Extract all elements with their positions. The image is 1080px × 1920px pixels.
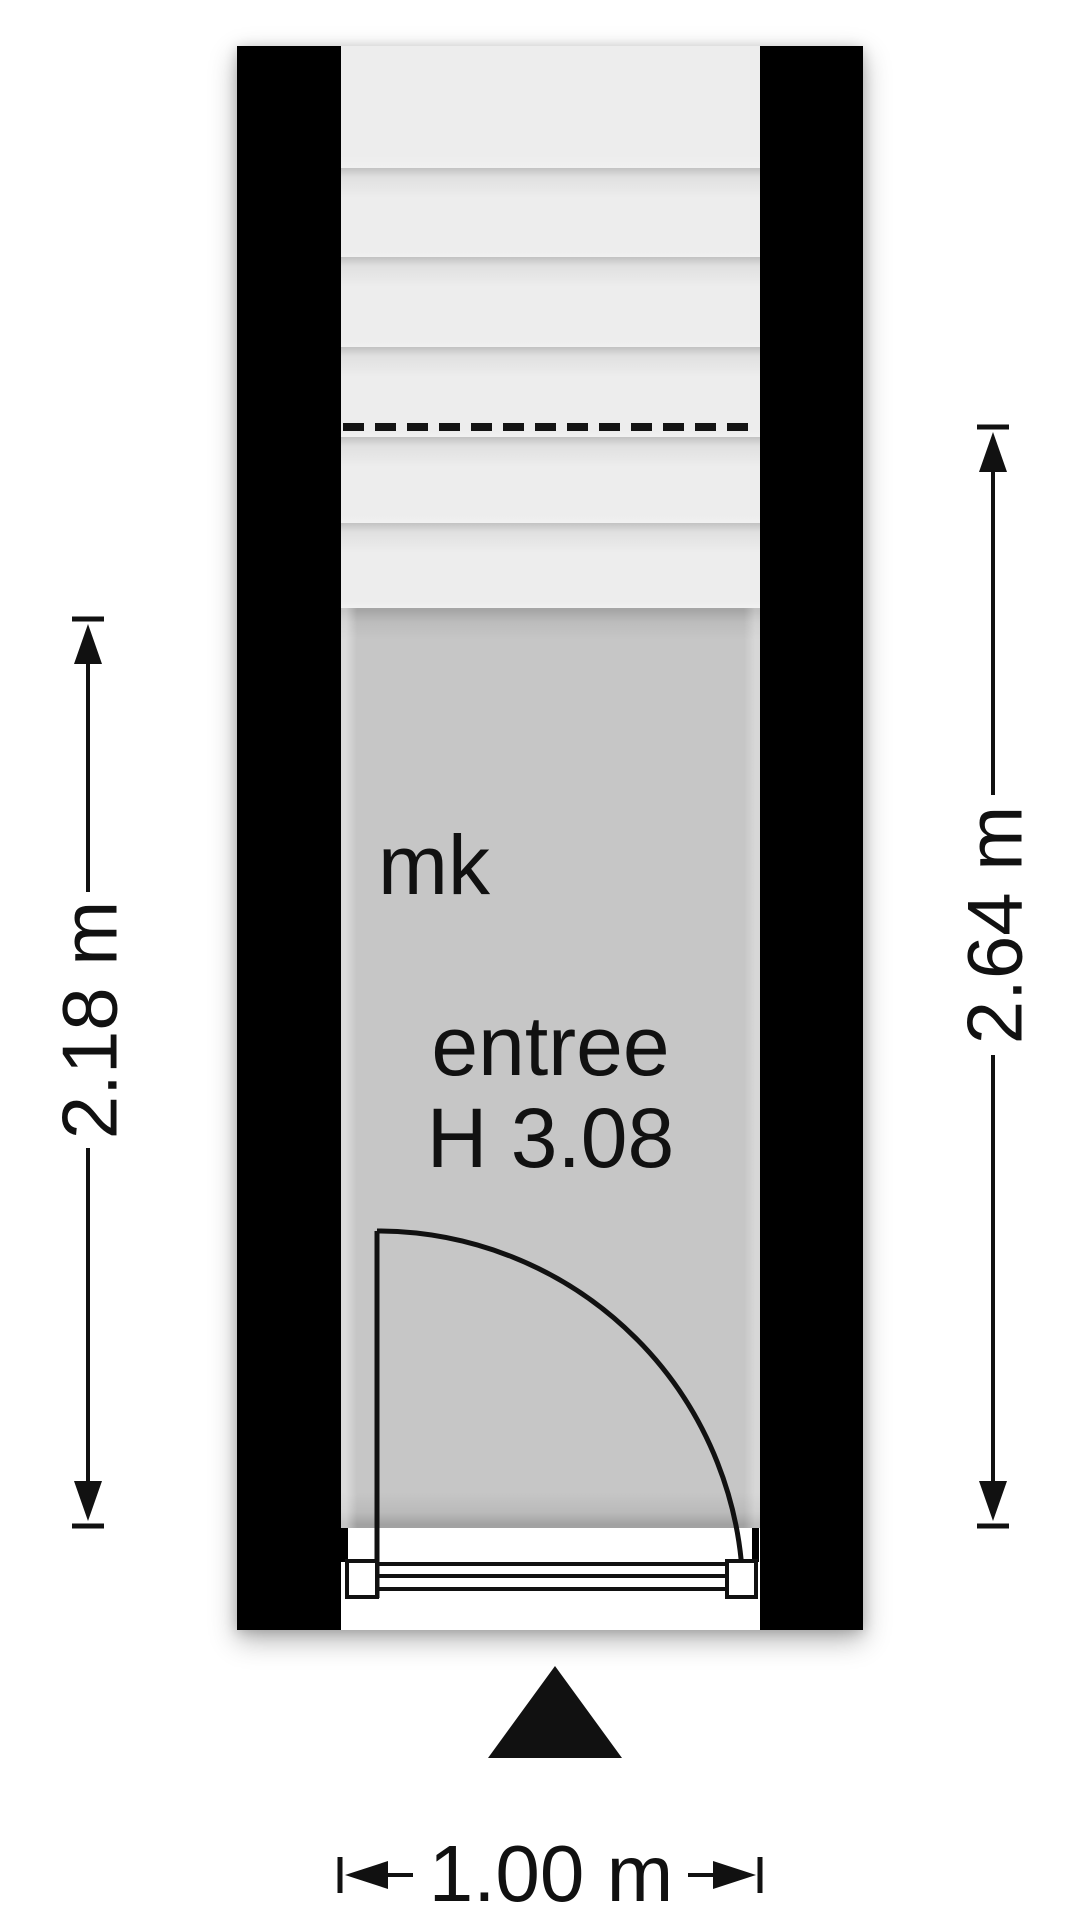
- wall-step-right: [752, 1528, 759, 1562]
- entrance-triangle-icon: [488, 1666, 622, 1758]
- stair-tread: [341, 46, 760, 168]
- dimension-label-right: 2.64 m: [950, 806, 1041, 1044]
- arrow-down-icon: [74, 1481, 102, 1521]
- wall-step-left: [341, 1528, 348, 1562]
- stairs-cut-line: [343, 423, 758, 431]
- stair-tread: [341, 168, 760, 257]
- room-label-block: entree H 3.08: [341, 1000, 760, 1184]
- arrow-left-icon: [345, 1861, 388, 1889]
- wall-left: [237, 46, 341, 1630]
- label-mk: mk: [378, 823, 490, 907]
- arrow-up-icon: [74, 624, 102, 664]
- label-room-name: entree: [341, 1000, 760, 1092]
- dimension-label-bottom: 1.00 m: [429, 1828, 674, 1920]
- wall-right: [760, 46, 863, 1630]
- arrow-down-icon: [979, 1481, 1007, 1521]
- arrow-right-icon: [713, 1861, 756, 1889]
- stair-tread: [341, 523, 760, 608]
- stair-tread: [341, 257, 760, 347]
- arrow-up-icon: [979, 432, 1007, 472]
- staircase: [341, 46, 760, 608]
- stair-tread: [341, 437, 760, 523]
- floorplan-canvas: mk entree H 3.08 2.18 m 2.64 m 1.00 m: [0, 0, 1080, 1920]
- label-ceiling-height: H 3.08: [341, 1092, 760, 1184]
- door-recess: [341, 1528, 760, 1630]
- dimension-label-left: 2.18 m: [45, 901, 136, 1139]
